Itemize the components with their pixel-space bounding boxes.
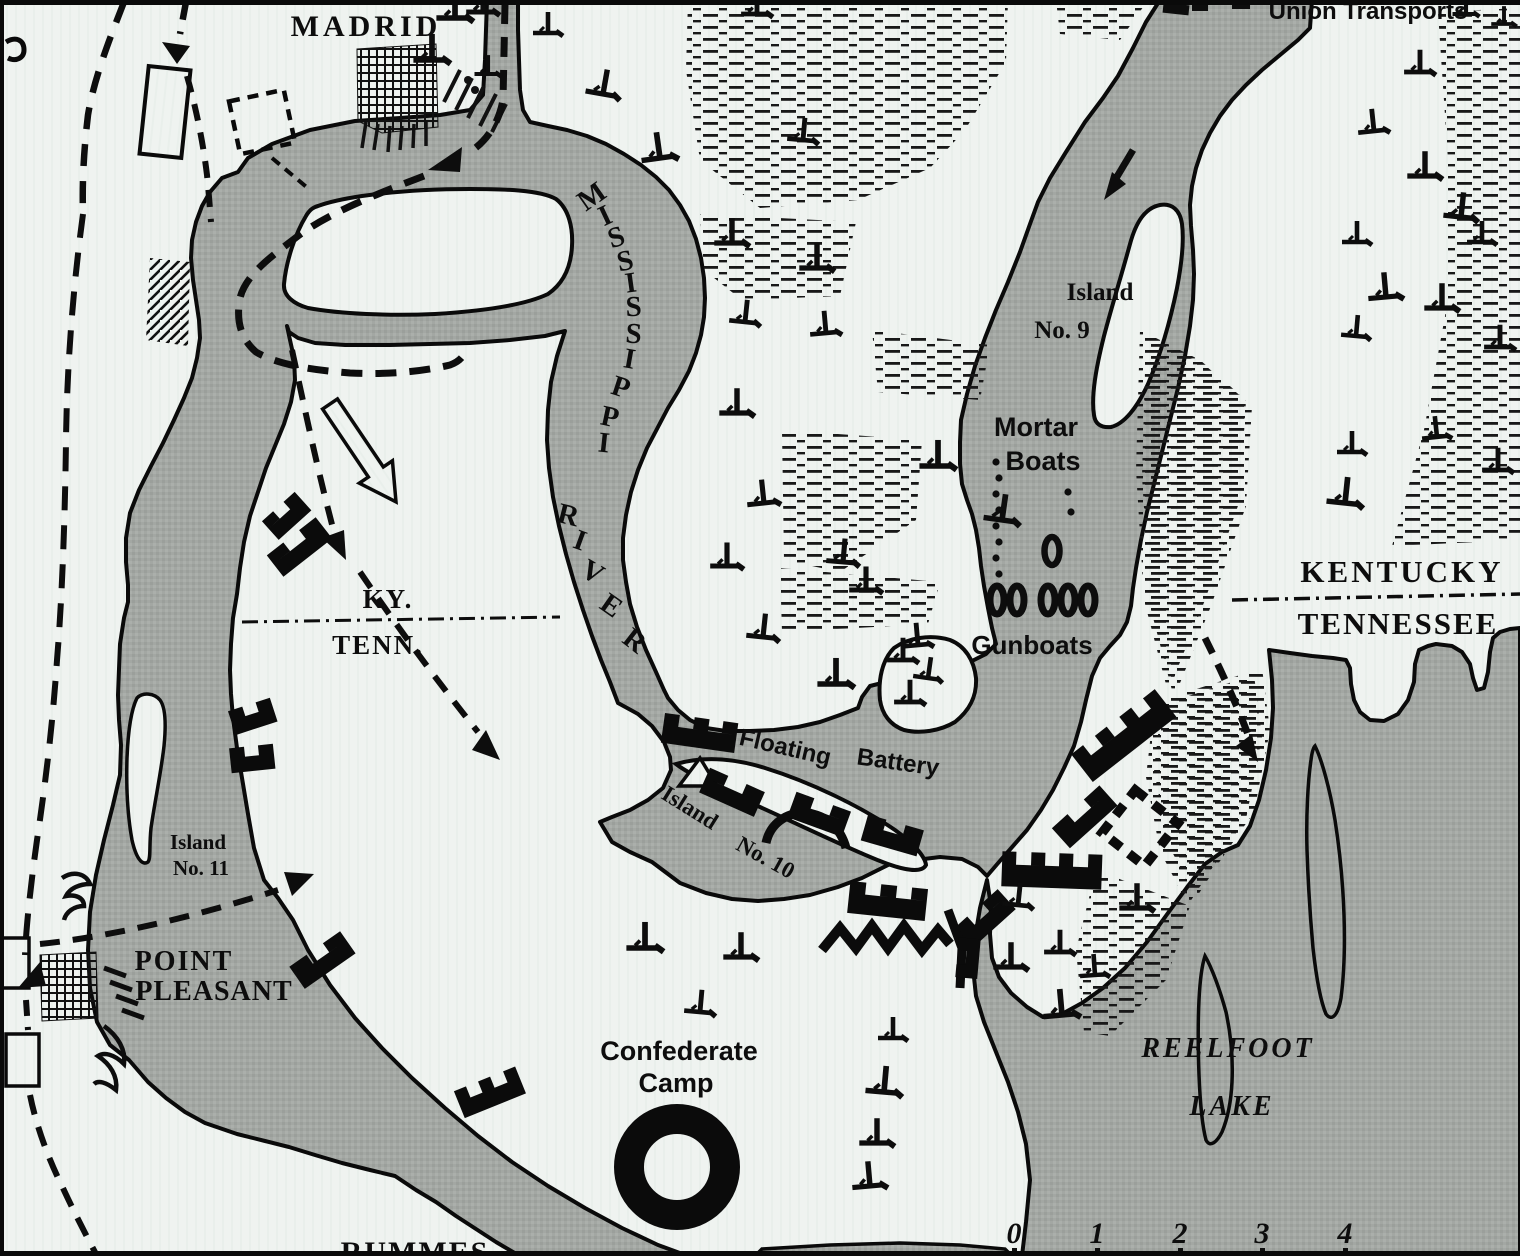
svg-text:KY.: KY. (363, 584, 414, 614)
svg-text:MADRID: MADRID (291, 10, 442, 43)
svg-text:REELFOOT: REELFOOT (1140, 1033, 1314, 1064)
svg-text:KENTUCKY: KENTUCKY (1300, 554, 1503, 589)
svg-text:Gunboats: Gunboats (971, 630, 1092, 660)
svg-text:TENN.: TENN. (332, 630, 424, 660)
svg-text:4: 4 (1337, 1217, 1353, 1250)
svg-text:Mortar: Mortar (994, 412, 1078, 442)
svg-text:POINT: POINT (135, 946, 234, 977)
svg-text:PLEASANT: PLEASANT (135, 976, 292, 1007)
svg-text:2: 2 (1172, 1217, 1188, 1250)
svg-text:Island: Island (1067, 279, 1134, 306)
svg-text:No. 11: No. 11 (173, 856, 229, 880)
svg-text:LAKE: LAKE (1188, 1091, 1274, 1122)
svg-text:1: 1 (1090, 1217, 1105, 1250)
svg-text:Boats: Boats (1005, 446, 1080, 476)
svg-text:Camp: Camp (638, 1068, 713, 1098)
svg-text:3: 3 (1254, 1217, 1270, 1250)
svg-text:Confederate: Confederate (600, 1036, 758, 1066)
svg-text:Island: Island (170, 830, 226, 854)
svg-text:No. 9: No. 9 (1034, 317, 1090, 344)
svg-text:TENNESSEE: TENNESSEE (1298, 606, 1499, 641)
svg-text:0: 0 (1007, 1217, 1022, 1250)
